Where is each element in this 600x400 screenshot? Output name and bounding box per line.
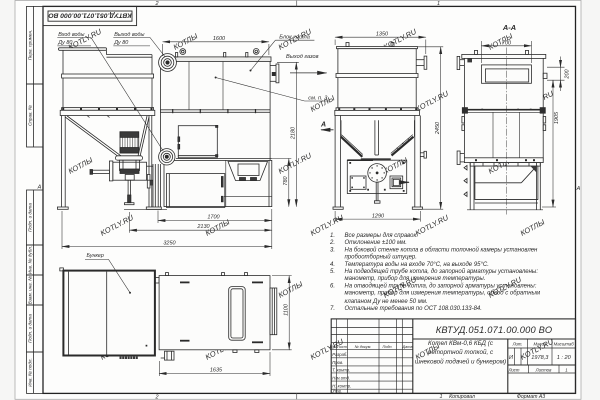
svg-text:ретортной топкой, с: ретортной топкой, с <box>427 348 494 356</box>
svg-text:манометр, прибор для измерения: манометр, прибор для измерения температу… <box>345 276 486 282</box>
svg-text:клапаном Ду не менее 50 мм.: клапаном Ду не менее 50 мм. <box>345 299 428 305</box>
svg-text:6.: 6. <box>330 283 335 289</box>
svg-text:1: 1 <box>439 394 442 400</box>
svg-text:Утв.: Утв. <box>332 389 342 394</box>
svg-text:№ докум.: № докум. <box>355 345 372 349</box>
svg-text:Масштаб: Масштаб <box>554 342 575 347</box>
svg-text:Лист: Лист <box>507 368 519 373</box>
svg-text:шнековой подачей и бункером): шнековой подачей и бункером) <box>415 357 506 365</box>
svg-text:200: 200 <box>565 68 571 79</box>
svg-text:5.: 5. <box>330 269 335 275</box>
svg-text:1700: 1700 <box>207 215 220 221</box>
svg-text:КВТУД.051.071.00.000 ВО: КВТУД.051.071.00.000 ВО <box>436 325 553 335</box>
svg-text:2180: 2180 <box>291 126 297 140</box>
svg-text:Копировал: Копировал <box>449 394 475 400</box>
svg-text:Формат А3: Формат А3 <box>517 394 545 400</box>
svg-text:2: 2 <box>154 394 158 400</box>
svg-text:Температура воды на входе 70°С: Температура воды на входе 70°С, на выход… <box>345 262 489 268</box>
svg-text:1 : 20: 1 : 20 <box>557 355 572 361</box>
svg-text:Нач.отд.: Нач.отд. <box>332 376 350 381</box>
svg-text:2130: 2130 <box>196 224 210 230</box>
svg-text:Выход воды: Выход воды <box>114 32 144 38</box>
svg-text:4.: 4. <box>330 262 335 268</box>
svg-text:Остальные требования по ОСТ 10: Остальные требования по ОСТ 108.030.133-… <box>345 306 482 312</box>
svg-text:Вход воды: Вход воды <box>58 32 84 38</box>
svg-text:2: 2 <box>154 1 158 7</box>
svg-text:Выход газов: Выход газов <box>286 54 319 60</box>
svg-text:Справ. №: Справ. № <box>28 105 33 126</box>
svg-text:Перв. примен.: Перв. примен. <box>28 30 33 61</box>
svg-text:1.: 1. <box>330 233 335 239</box>
svg-text:Дата: Дата <box>401 345 412 349</box>
svg-text:Блок котла: Блок котла <box>279 35 310 41</box>
svg-text:Т. контр.: Т. контр. <box>332 367 350 372</box>
svg-text:1635: 1635 <box>210 368 223 374</box>
svg-text:Подп. и дата: Подп. и дата <box>28 314 33 343</box>
svg-text:На боковой стенке котла в обла: На боковой стенке котла в области топочн… <box>345 246 539 253</box>
svg-text:КВТУД.051.071.00.000 ВО: КВТУД.051.071.00.000 ВО <box>48 12 132 19</box>
svg-text:Листов: Листов <box>535 368 552 373</box>
svg-text:1: 1 <box>437 1 440 7</box>
svg-text:А-А: А-А <box>502 23 516 32</box>
svg-text:Взам. инв. №: Взам. инв. № <box>28 276 33 304</box>
svg-text:Все размеры для справок.: Все размеры для справок. <box>345 233 419 239</box>
svg-text:1100: 1100 <box>284 303 290 316</box>
svg-text:манометр, прибор для измерения: манометр, прибор для измерения температу… <box>345 291 541 297</box>
svg-text:1600: 1600 <box>213 36 226 42</box>
svg-text:700: 700 <box>502 40 512 46</box>
svg-text:А: А <box>320 122 326 129</box>
svg-text:Ду 80: Ду 80 <box>57 40 72 46</box>
svg-text:1290: 1290 <box>372 213 385 219</box>
svg-text:пробоотборный штуцер.: пробоотборный штуцер. <box>345 254 417 261</box>
svg-text:Лит.: Лит. <box>512 342 523 347</box>
svg-text:3250: 3250 <box>163 241 176 247</box>
svg-text:2.: 2. <box>329 240 335 246</box>
svg-text:1905: 1905 <box>554 111 560 124</box>
svg-text:Отклонение ±100 мм.: Отклонение ±100 мм. <box>345 240 407 246</box>
svg-text:Масса: Масса <box>533 342 546 347</box>
svg-text:Подп.: Подп. <box>382 345 392 349</box>
svg-text:7.: 7. <box>330 306 335 312</box>
svg-text:1978,3: 1978,3 <box>531 355 549 361</box>
svg-text:Ду 80: Ду 80 <box>113 40 128 46</box>
svg-text:Лист: Лист <box>336 345 347 349</box>
svg-text:А: А <box>576 186 581 192</box>
svg-text:Подп. и дата: Подп. и дата <box>28 203 33 232</box>
svg-text:1350: 1350 <box>376 31 389 37</box>
svg-text:780: 780 <box>283 175 289 185</box>
svg-text:На отводящей трубе котла, до з: На отводящей трубе котла, до запорной ар… <box>345 282 537 289</box>
svg-text:Инв. № дубл.: Инв. № дубл. <box>28 246 33 274</box>
svg-text:На подводящей трубе котла, до: На подводящей трубе котла, до запорной а… <box>345 268 539 275</box>
svg-text:Котел КВм-0,6 КБД (с: Котел КВм-0,6 КБД (с <box>428 340 494 347</box>
svg-text:3.: 3. <box>330 247 335 253</box>
svg-text:Пров.: Пров. <box>332 360 343 365</box>
svg-text:Бункер: Бункер <box>87 253 104 259</box>
svg-text:2450: 2450 <box>435 121 441 135</box>
svg-text:Разраб.: Разраб. <box>332 352 347 357</box>
svg-text:см. п. 3: см. п. 3 <box>308 96 328 102</box>
svg-text:Инв. № подл.: Инв. № подл. <box>28 358 33 387</box>
svg-text:И: И <box>509 355 513 361</box>
